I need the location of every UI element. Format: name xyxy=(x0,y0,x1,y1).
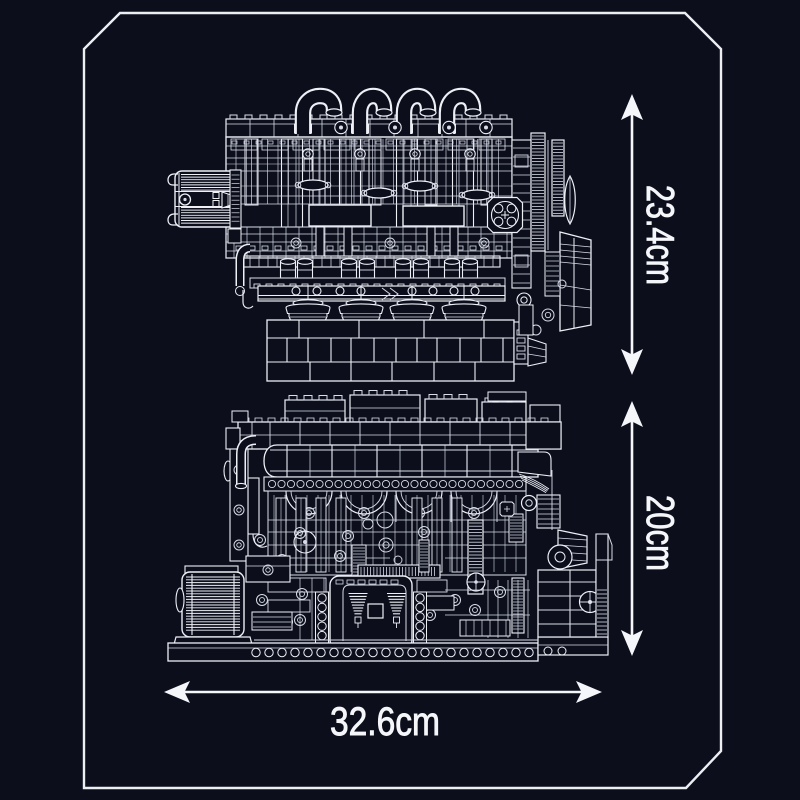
svg-text:23.4cm: 23.4cm xyxy=(638,185,681,285)
svg-text:20cm: 20cm xyxy=(638,495,681,571)
svg-text:32.6cm: 32.6cm xyxy=(330,700,440,744)
